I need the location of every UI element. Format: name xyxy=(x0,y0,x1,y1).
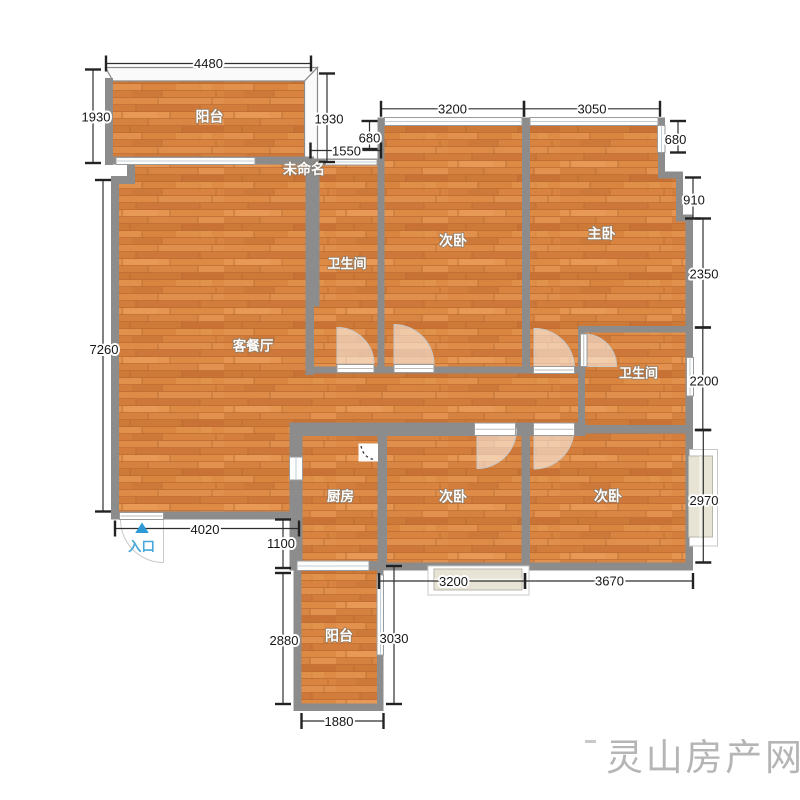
svg-text:客餐厅: 客餐厅 xyxy=(232,338,274,354)
svg-text:2350: 2350 xyxy=(690,267,719,282)
svg-text:阳台: 阳台 xyxy=(325,628,353,644)
svg-text:主卧: 主卧 xyxy=(588,226,616,242)
svg-text:次卧: 次卧 xyxy=(594,488,622,504)
svg-text:2970: 2970 xyxy=(690,493,719,508)
svg-text:3030: 3030 xyxy=(380,631,409,646)
svg-text:7260: 7260 xyxy=(90,342,119,357)
svg-text:4480: 4480 xyxy=(194,56,223,71)
svg-text:1550: 1550 xyxy=(332,144,361,159)
svg-text:3200: 3200 xyxy=(439,574,468,589)
svg-text:1930: 1930 xyxy=(82,110,111,125)
svg-text:680: 680 xyxy=(359,131,381,146)
svg-text:910: 910 xyxy=(683,193,705,208)
svg-text:2200: 2200 xyxy=(690,374,719,389)
svg-text:1100: 1100 xyxy=(267,536,295,551)
svg-text:卫生间: 卫生间 xyxy=(327,256,366,271)
svg-text:2880: 2880 xyxy=(270,633,299,648)
svg-text:1930: 1930 xyxy=(315,112,344,127)
svg-text:灵山房产网: 灵山房产网 xyxy=(606,737,800,778)
svg-text:680: 680 xyxy=(665,132,687,147)
svg-text:厨房: 厨房 xyxy=(327,488,354,504)
svg-text:卫生间: 卫生间 xyxy=(619,366,658,381)
svg-text:未命名: 未命名 xyxy=(283,161,325,177)
svg-text:阳台: 阳台 xyxy=(196,109,224,125)
svg-text:3050: 3050 xyxy=(578,102,607,117)
svg-text:次卧: 次卧 xyxy=(439,233,467,249)
svg-text:入口: 入口 xyxy=(128,539,155,554)
svg-text:3200: 3200 xyxy=(438,102,467,117)
svg-text:次卧: 次卧 xyxy=(439,489,467,505)
svg-text:3670: 3670 xyxy=(595,574,624,589)
svg-text:1880: 1880 xyxy=(325,714,354,729)
svg-text:4020: 4020 xyxy=(191,522,220,537)
